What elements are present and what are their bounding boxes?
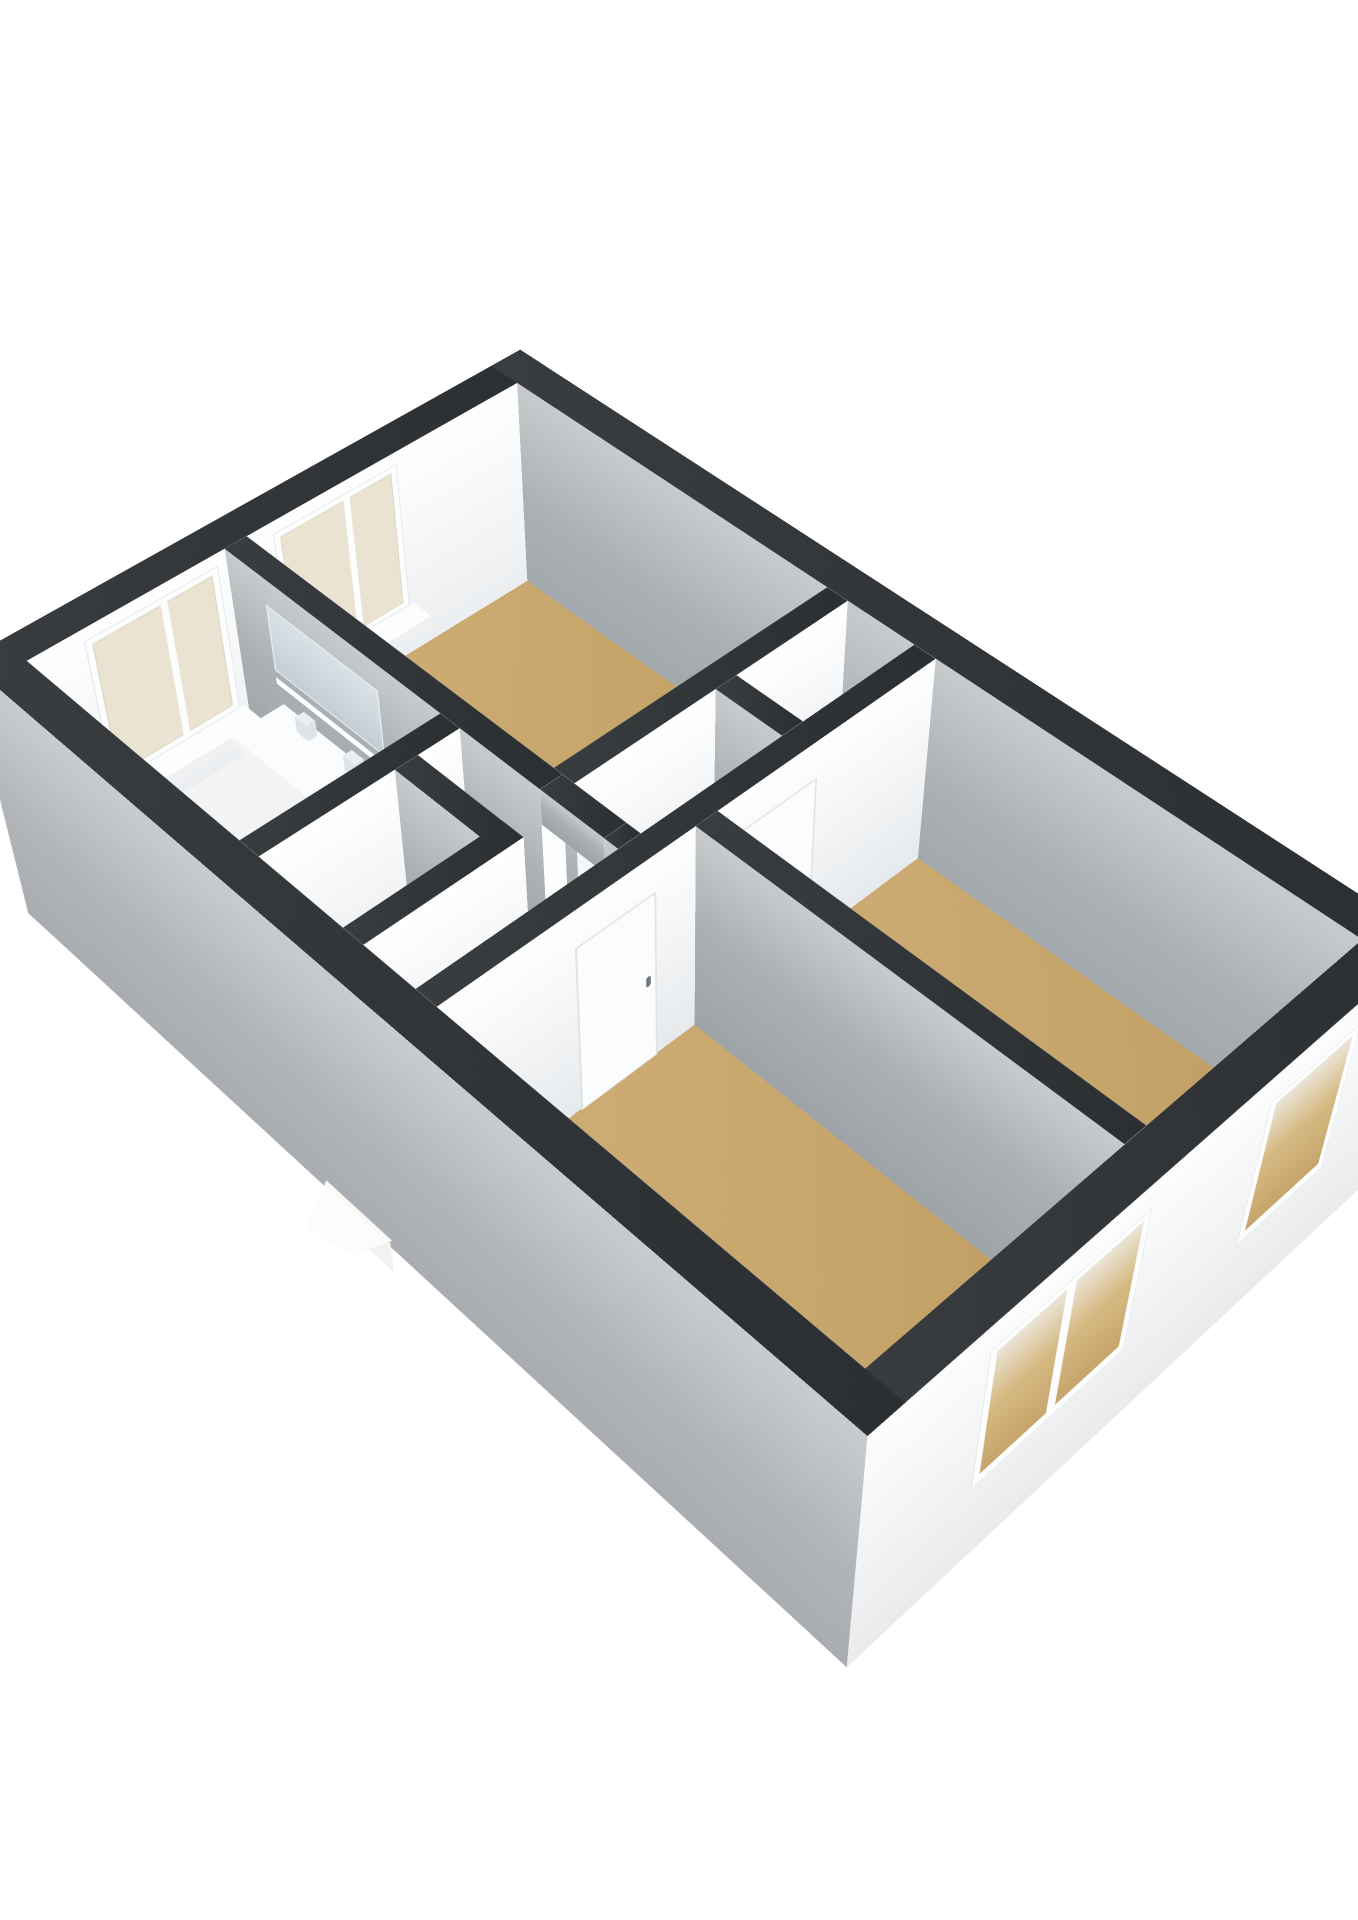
floorplan-3d-render — [0, 0, 1358, 1920]
perspective-wrapper — [0, 0, 1358, 1920]
